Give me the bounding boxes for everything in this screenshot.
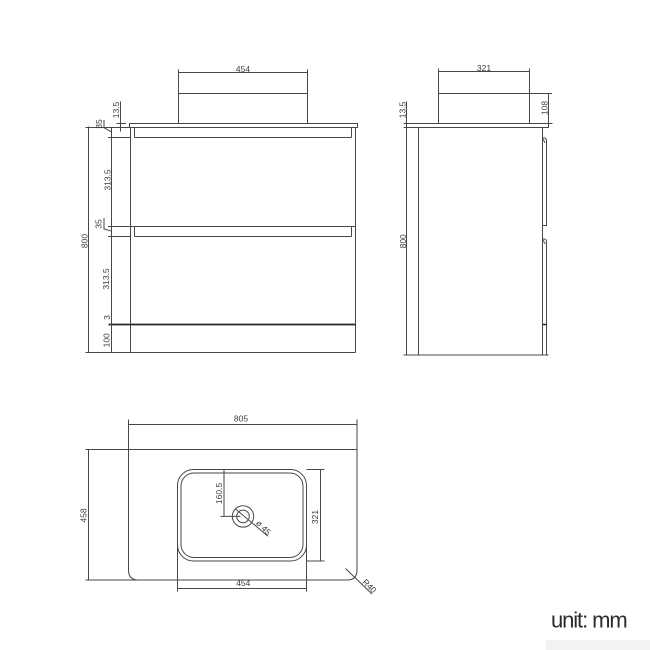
svg-text:R40: R40 bbox=[360, 577, 378, 595]
svg-text:800: 800 bbox=[80, 234, 90, 248]
svg-text:800: 800 bbox=[398, 234, 408, 248]
svg-text:108: 108 bbox=[540, 101, 550, 115]
svg-text:321: 321 bbox=[310, 510, 320, 524]
svg-text:313.5: 313.5 bbox=[103, 169, 113, 191]
svg-text:321: 321 bbox=[477, 63, 491, 73]
svg-text:35: 35 bbox=[94, 219, 104, 229]
svg-text:unit: mm: unit: mm bbox=[551, 608, 627, 633]
svg-text:13.5: 13.5 bbox=[111, 101, 121, 118]
svg-text:13.5: 13.5 bbox=[398, 101, 408, 118]
svg-text:3: 3 bbox=[102, 315, 112, 320]
svg-text:100: 100 bbox=[102, 333, 112, 347]
svg-text:805: 805 bbox=[234, 414, 248, 424]
svg-text:313.5: 313.5 bbox=[101, 268, 111, 290]
svg-text:458: 458 bbox=[79, 508, 89, 522]
svg-text:35: 35 bbox=[94, 119, 104, 129]
svg-text:454: 454 bbox=[236, 64, 250, 74]
svg-text:ø 45: ø 45 bbox=[254, 518, 273, 537]
svg-text:160.5: 160.5 bbox=[214, 483, 224, 505]
svg-text:454: 454 bbox=[236, 578, 250, 588]
